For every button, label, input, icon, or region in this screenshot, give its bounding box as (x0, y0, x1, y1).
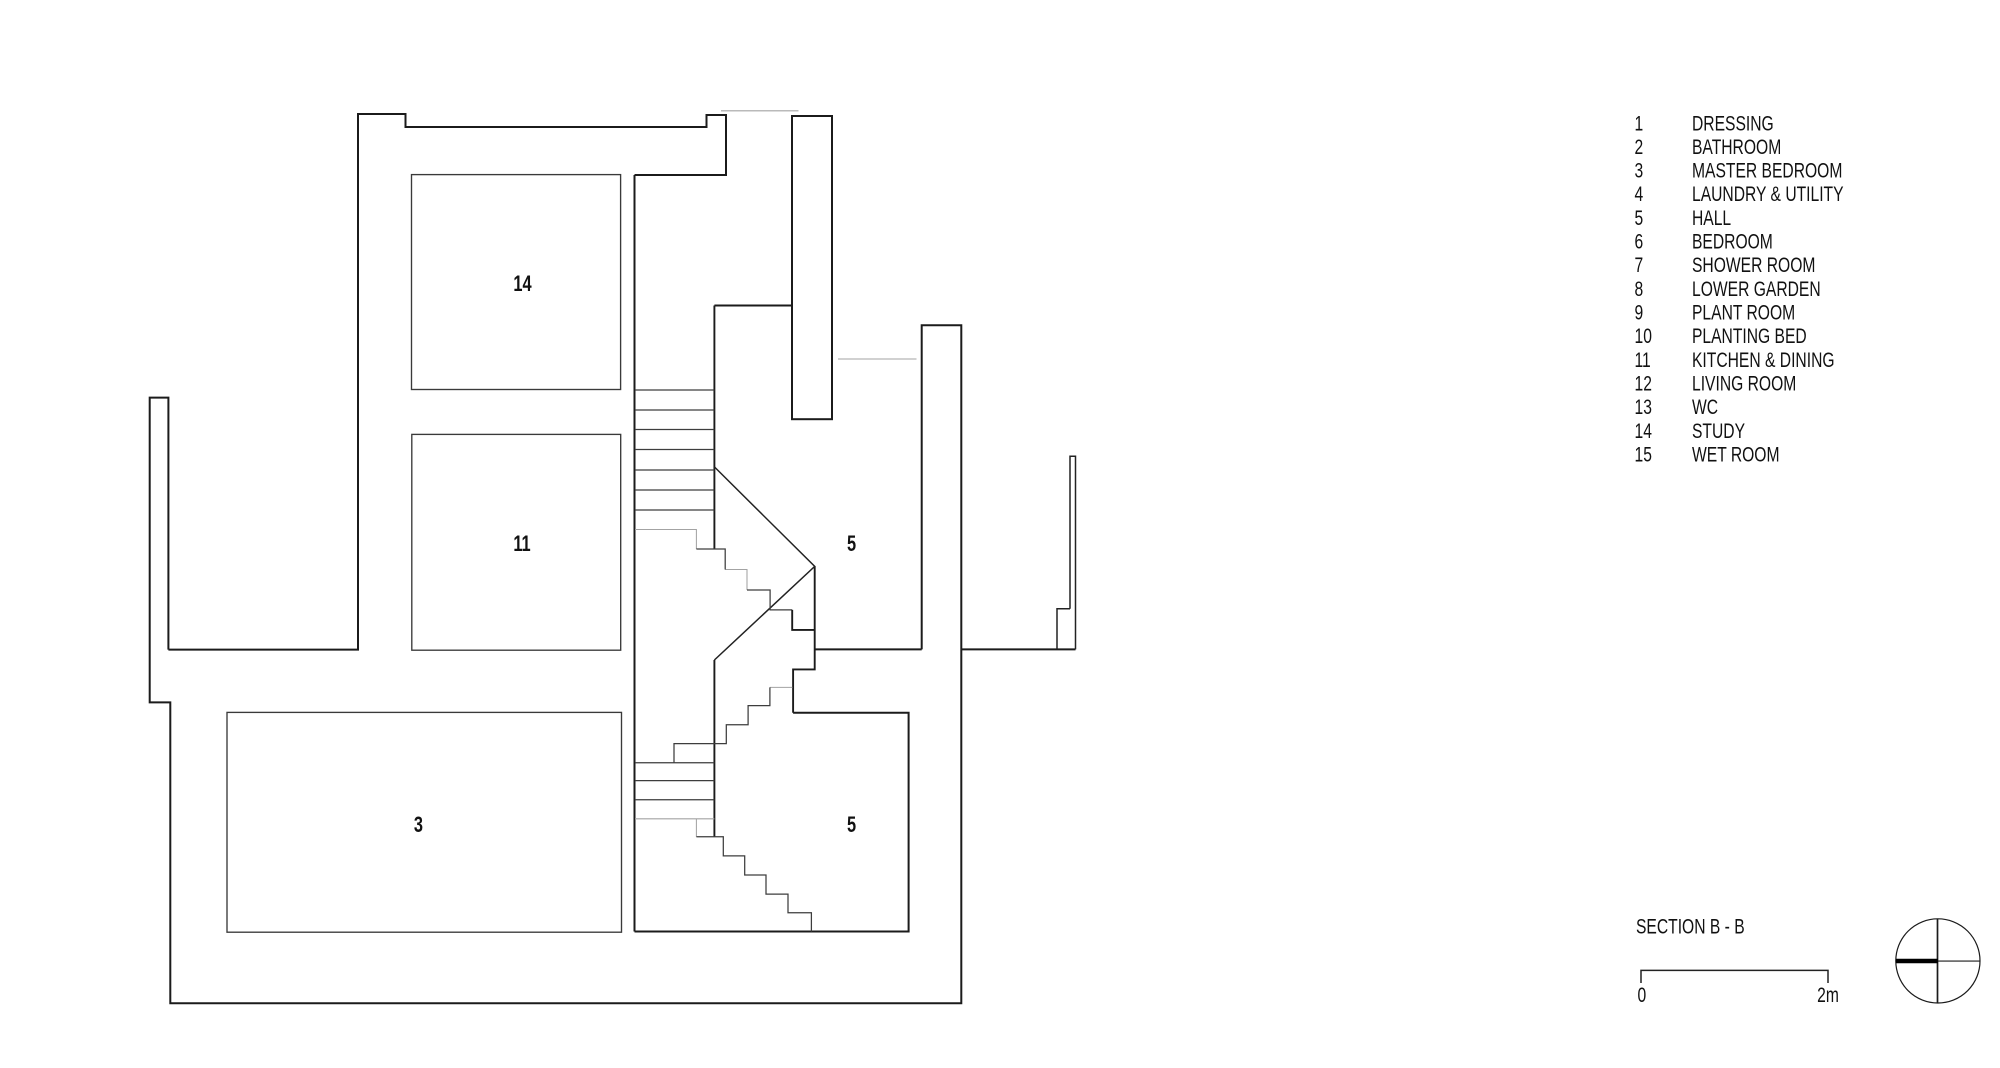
svg-text:11: 11 (1635, 349, 1651, 372)
svg-text:LAUNDRY & UTILITY: LAUNDRY & UTILITY (1692, 183, 1844, 206)
svg-text:4: 4 (1635, 183, 1644, 206)
svg-text:WC: WC (1692, 396, 1718, 419)
svg-text:KITCHEN & DINING: KITCHEN & DINING (1692, 349, 1835, 372)
svg-text:0: 0 (1638, 984, 1647, 1007)
svg-text:10: 10 (1635, 325, 1652, 348)
svg-text:STUDY: STUDY (1692, 420, 1745, 443)
svg-text:2m: 2m (1817, 984, 1839, 1007)
svg-text:SECTION B - B: SECTION B - B (1636, 915, 1745, 938)
svg-text:15: 15 (1635, 443, 1652, 466)
svg-text:BATHROOM: BATHROOM (1692, 136, 1781, 159)
svg-text:LOWER GARDEN: LOWER GARDEN (1692, 278, 1821, 301)
svg-text:3: 3 (414, 812, 423, 837)
svg-text:11: 11 (513, 531, 530, 556)
svg-text:8: 8 (1635, 278, 1644, 301)
svg-text:9: 9 (1635, 302, 1644, 325)
svg-text:SHOWER ROOM: SHOWER ROOM (1692, 254, 1815, 277)
svg-text:1: 1 (1635, 112, 1644, 135)
svg-text:DRESSING: DRESSING (1692, 112, 1774, 135)
svg-text:7: 7 (1635, 254, 1644, 277)
svg-text:MASTER BEDROOM: MASTER BEDROOM (1692, 160, 1842, 183)
svg-text:5: 5 (1635, 207, 1644, 230)
svg-text:HALL: HALL (1692, 207, 1731, 230)
svg-text:3: 3 (1635, 160, 1644, 183)
svg-text:PLANTING BED: PLANTING BED (1692, 325, 1807, 348)
svg-text:5: 5 (847, 531, 856, 556)
svg-text:2: 2 (1635, 136, 1644, 159)
svg-text:6: 6 (1635, 231, 1644, 254)
svg-text:BEDROOM: BEDROOM (1692, 231, 1773, 254)
svg-text:LIVING ROOM: LIVING ROOM (1692, 372, 1796, 395)
svg-text:14: 14 (513, 271, 532, 296)
svg-text:WET ROOM: WET ROOM (1692, 443, 1779, 466)
svg-text:12: 12 (1635, 372, 1652, 395)
svg-text:PLANT ROOM: PLANT ROOM (1692, 302, 1795, 325)
svg-text:14: 14 (1635, 420, 1653, 443)
svg-text:5: 5 (847, 812, 856, 837)
svg-text:13: 13 (1635, 396, 1652, 419)
